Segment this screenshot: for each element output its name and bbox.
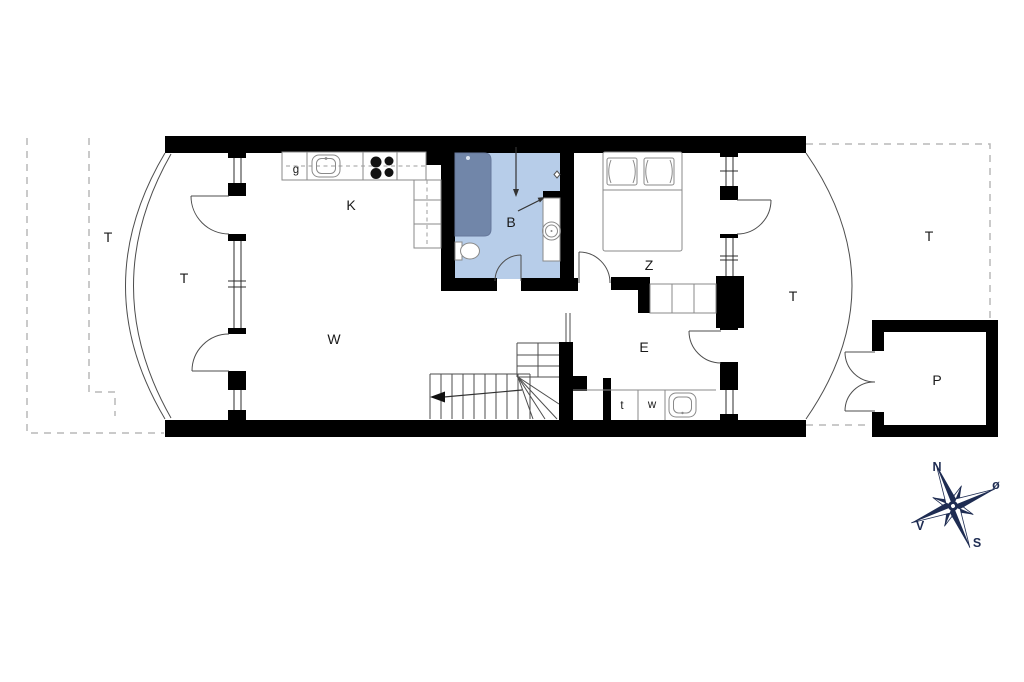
double-bed-icon — [603, 152, 682, 251]
utility-divider-wall — [603, 378, 611, 420]
room-label-bathroom: B — [506, 214, 515, 230]
bedroom-furniture — [579, 152, 682, 283]
hall-closet — [650, 284, 716, 313]
dashed-left-inner — [89, 138, 115, 416]
terrace-left-edge-inner — [134, 154, 172, 418]
room-label-kitchen: K — [346, 197, 356, 213]
window — [228, 390, 246, 410]
entrance-door — [689, 331, 721, 363]
compass-label-south: S — [973, 536, 981, 550]
terrace-left-edge-outer — [126, 153, 166, 419]
floor-plan-canvas: T T K B W Z E T T P g t w — [0, 0, 1024, 682]
outbuilding-double-door — [845, 352, 875, 411]
compass-label-west: V — [916, 519, 925, 533]
room-label-living-room: W — [327, 331, 341, 347]
wall-pier-right — [716, 276, 744, 328]
shower-head-icon — [466, 156, 470, 160]
dashed-left-outer — [27, 138, 164, 433]
vanity-wall-stub — [543, 191, 560, 198]
window — [228, 241, 246, 328]
window — [720, 157, 738, 186]
bath-wall-left — [441, 146, 455, 291]
wall-bottom — [165, 420, 806, 437]
room-label-bedroom: Z — [645, 257, 654, 273]
stair-wall — [559, 342, 573, 420]
label-washer: w — [647, 399, 657, 411]
hall-wall-stub — [573, 376, 587, 391]
wardrobe-icon — [650, 284, 716, 313]
bath-wall-bottom-right — [521, 278, 578, 291]
compass-label-east: ø — [992, 478, 1000, 492]
left-door-opening-upper — [227, 196, 247, 234]
shower-icon — [455, 153, 491, 236]
toilet-icon — [455, 242, 480, 260]
bath-wall-bottom-left — [441, 278, 497, 291]
floor-plan-svg: T T K B W Z E T T P g t w — [0, 0, 1024, 682]
bath-wall-right — [560, 146, 574, 290]
left-door-opening-lower — [227, 334, 247, 371]
window — [720, 390, 738, 414]
room-label-terrace-right: T — [789, 288, 798, 304]
label-appliance: g — [293, 164, 299, 176]
room-label-terrace-left: T — [180, 270, 189, 286]
wall-top — [165, 136, 806, 153]
compass-label-north: N — [932, 460, 941, 474]
utility-row — [573, 390, 716, 420]
kitchen-counter — [282, 152, 441, 248]
entrance-door-opening — [719, 330, 739, 362]
terrace-door-left-upper — [191, 196, 229, 234]
washbasin-icon — [543, 198, 561, 261]
terrace-right-edge — [806, 153, 852, 419]
label-toilet-room: t — [620, 400, 624, 412]
room-label-terrace-far-left: T — [104, 229, 113, 245]
room-label-outbuilding: P — [932, 372, 941, 388]
staircase — [430, 313, 570, 419]
stair-direction-arrow — [430, 390, 522, 403]
room-label-entry-hall: E — [639, 339, 648, 355]
room-label-terrace-far-right: T — [925, 228, 934, 244]
window — [720, 238, 738, 276]
closet-wall-jut — [638, 277, 650, 313]
outbuilding-p — [845, 320, 998, 437]
terrace-door-left-lower — [192, 334, 229, 371]
window — [228, 158, 246, 183]
terrace-door-right — [737, 200, 771, 234]
dashed-right-top — [806, 144, 990, 320]
compass-rose: N ø S V — [894, 447, 1011, 564]
utility-sink-icon — [669, 393, 696, 417]
right-door-opening-terrace — [719, 200, 739, 234]
bedroom-door — [579, 252, 610, 283]
